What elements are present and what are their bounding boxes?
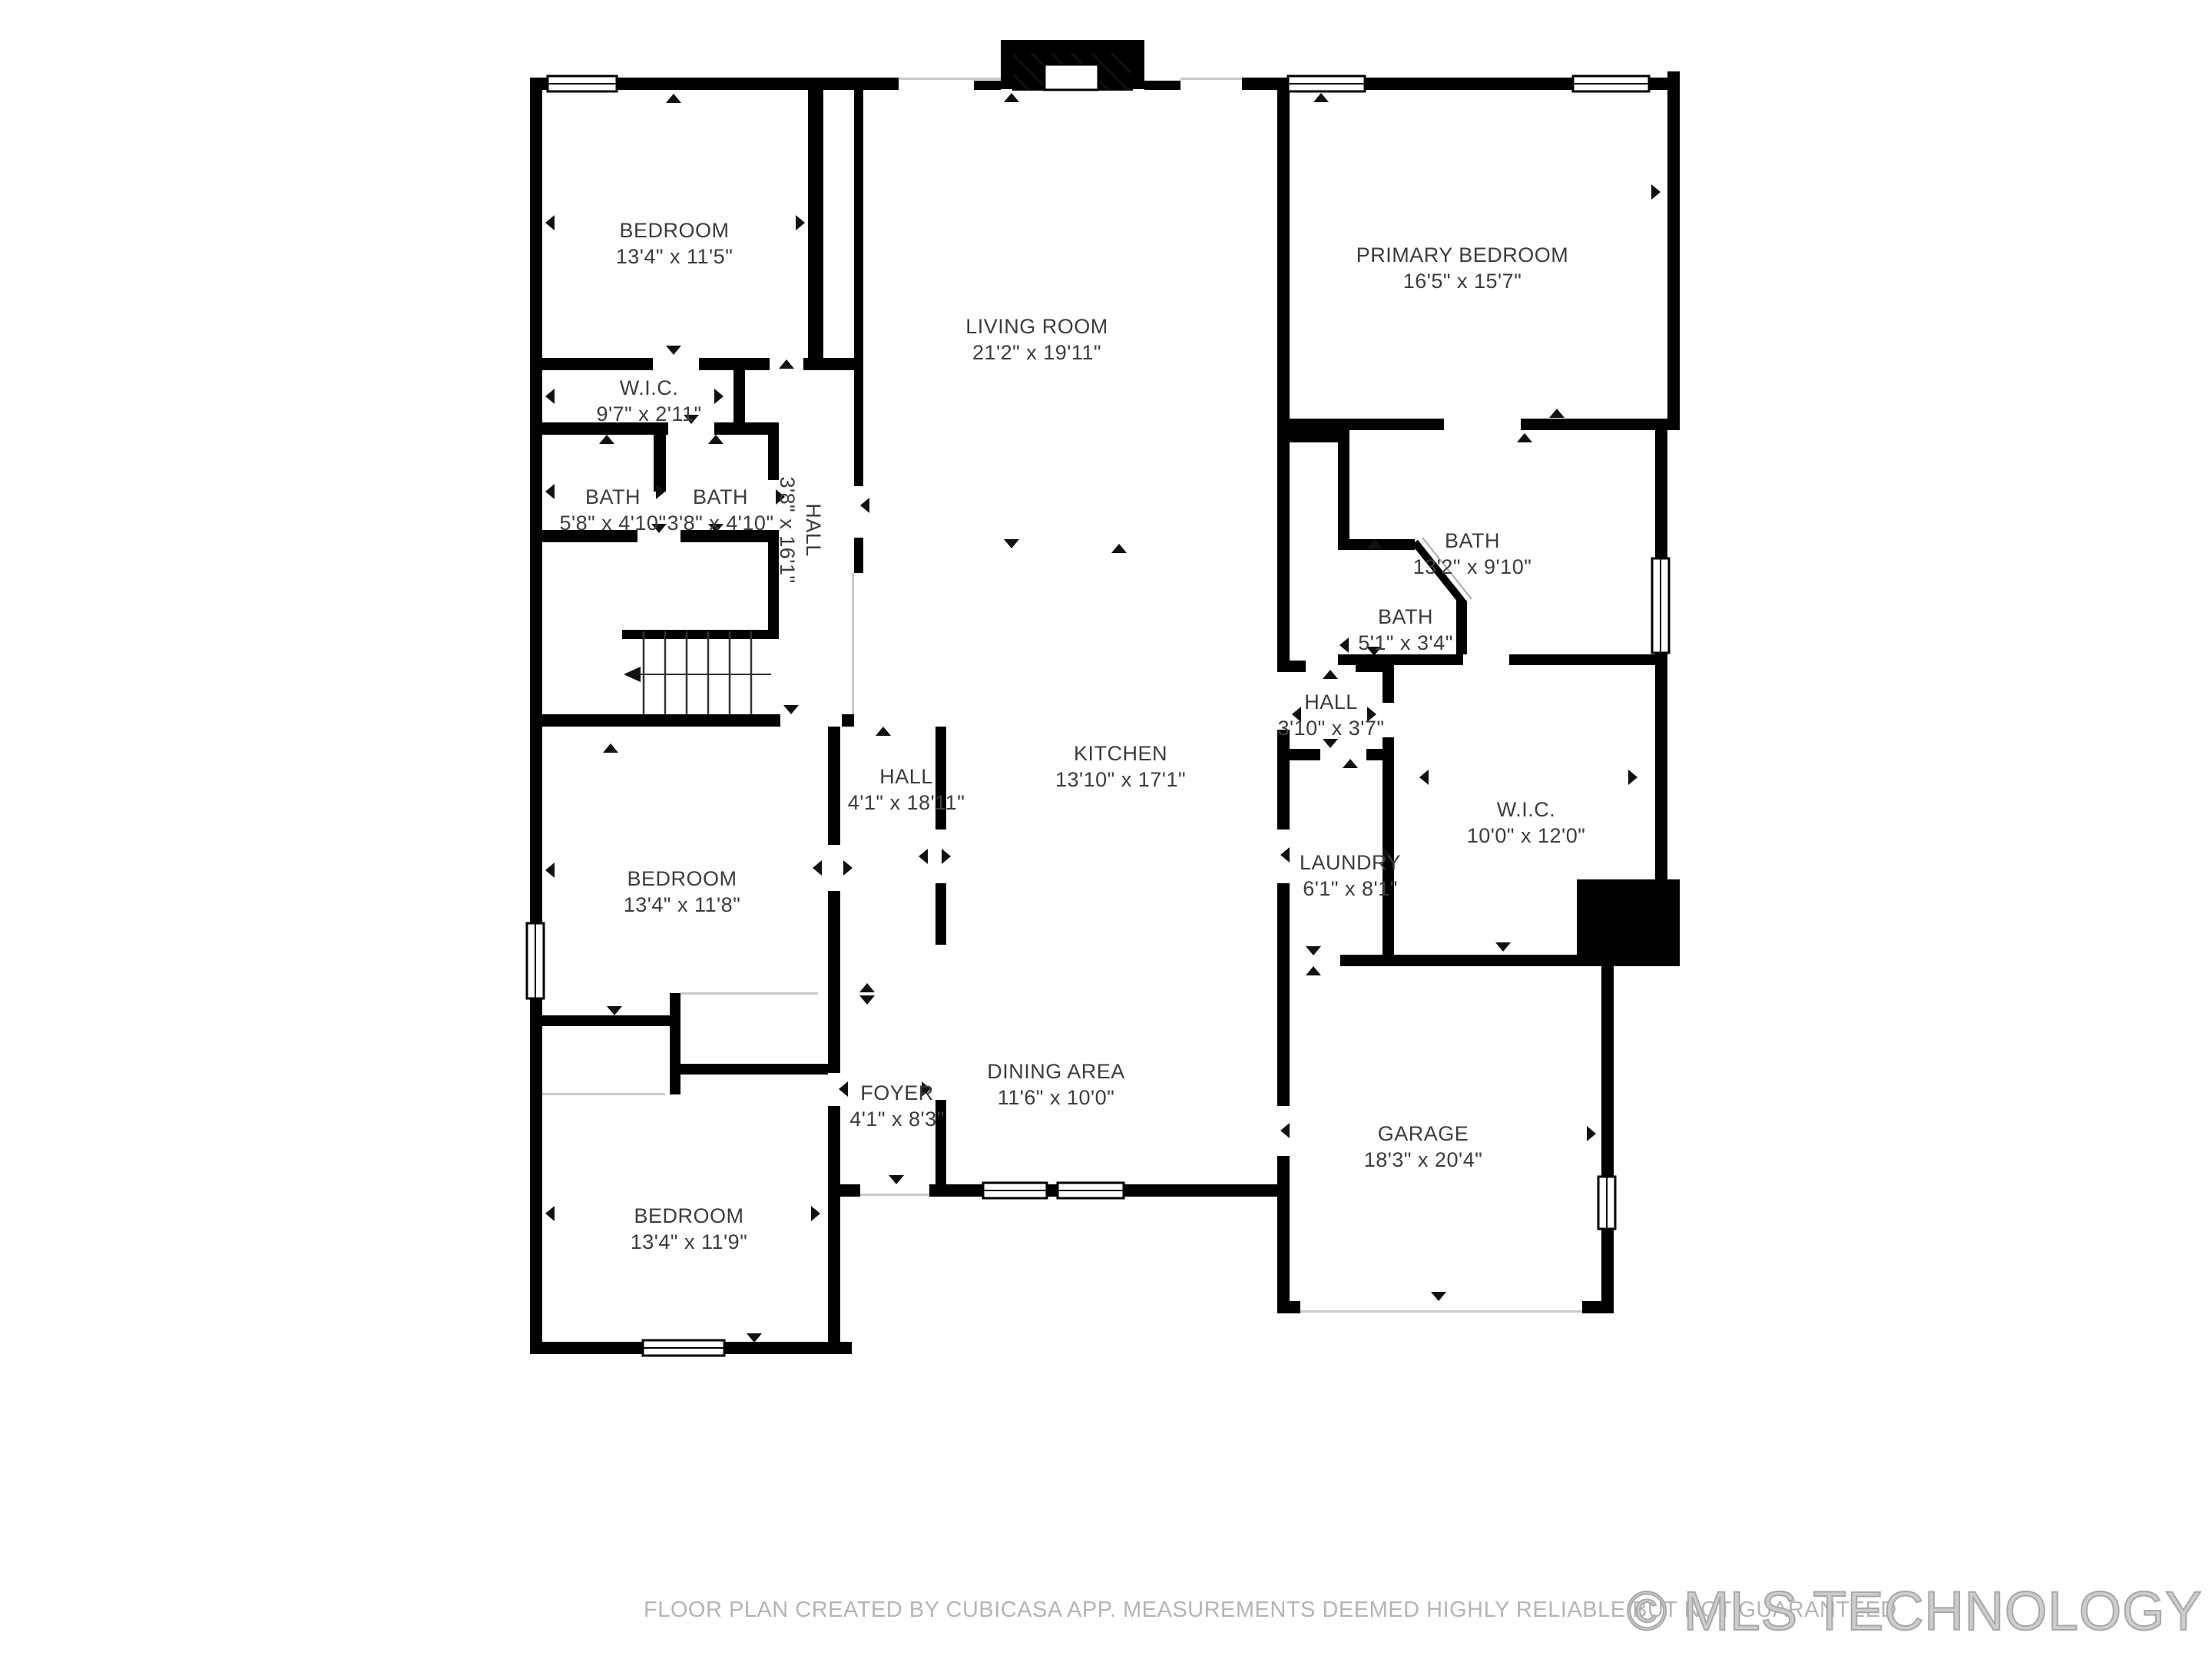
- door-marker: [666, 346, 681, 355]
- floor-plan-canvas: BEDROOM 13'4" x 11'5" W.I.C. 9'7" x 2'11…: [0, 0, 2212, 1659]
- door-marker: [599, 435, 614, 444]
- door-marker: [1367, 539, 1382, 548]
- door-marker: [1651, 184, 1661, 200]
- room-label-foyer: FOYER 4'1" x 8'3": [849, 1080, 945, 1132]
- door-marker: [1343, 759, 1358, 768]
- room-dims: 10'0" x 12'0": [1467, 823, 1586, 849]
- room-label-wic-1: W.I.C. 9'7" x 2'11": [596, 375, 701, 427]
- door-marker: [1587, 1126, 1596, 1141]
- door-marker: [545, 484, 555, 499]
- room-dims: 5'8" x 4'10": [559, 510, 666, 536]
- door-marker: [1549, 409, 1565, 418]
- door-marker: [545, 863, 555, 878]
- room-dims: 13'2" x 9'10": [1413, 554, 1532, 580]
- door-marker: [919, 849, 928, 864]
- door-marker: [1004, 539, 1019, 548]
- room-label-hall-small: HALL 3'10" x 3'7": [1277, 689, 1384, 741]
- window: [548, 76, 617, 91]
- door-marker: [1004, 93, 1019, 102]
- door-marker: [1339, 637, 1349, 653]
- door-marker: [1495, 942, 1511, 952]
- door-marker: [1517, 433, 1532, 442]
- room-dims: 13'4" x 11'8": [624, 892, 741, 918]
- door-marker: [859, 995, 875, 1005]
- room-label-bath-1: BATH 5'8" x 4'10": [559, 484, 666, 536]
- room-label-garage: GARAGE 18'3" x 20'4": [1364, 1121, 1483, 1173]
- door-marker: [545, 389, 555, 404]
- room-dims: 9'7" x 2'11": [596, 401, 701, 427]
- door-marker: [859, 983, 875, 992]
- room-label-bedroom-3: BEDROOM 13'4" x 11'9": [631, 1203, 748, 1255]
- window: [1652, 558, 1669, 653]
- room-label-dining-area: DINING AREA 11'6" x 10'0": [987, 1058, 1125, 1111]
- door-marker: [607, 1006, 622, 1015]
- door-marker: [942, 849, 951, 864]
- room-label-hall-upper: HALL 3'8" x 16'1": [774, 476, 826, 583]
- door-marker: [1628, 770, 1637, 785]
- window: [983, 1183, 1047, 1198]
- room-name: BATH: [693, 485, 748, 508]
- room-name: LIVING ROOM: [965, 315, 1108, 338]
- door-marker: [1323, 670, 1338, 679]
- room-name: FOYER: [860, 1081, 934, 1104]
- room-name: BEDROOM: [627, 867, 737, 890]
- door-marker: [843, 860, 853, 876]
- room-label-wic-2: W.I.C. 10'0" x 12'0": [1467, 796, 1586, 849]
- room-dims: 4'1" x 8'3": [849, 1106, 945, 1132]
- room-label-kitchen: KITCHEN 13'10" x 17'1": [1055, 740, 1186, 793]
- room-dims: 3'8" x 4'10": [667, 510, 773, 536]
- room-label-hall-lower: HALL 4'1" x 18'11": [848, 763, 965, 816]
- door-marker: [783, 705, 799, 714]
- window: [527, 923, 544, 998]
- room-dims: 4'1" x 18'11": [848, 790, 965, 816]
- door-marker: [1431, 1292, 1446, 1301]
- room-dims: 21'2" x 19'11": [965, 339, 1108, 366]
- door-marker: [860, 498, 869, 513]
- room-dims: 13'4" x 11'9": [631, 1229, 748, 1255]
- room-name: HALL: [879, 765, 933, 788]
- room-name: KITCHEN: [1074, 742, 1167, 765]
- door-marker: [1280, 1123, 1290, 1138]
- door-marker: [708, 435, 724, 444]
- room-name: HALL: [1304, 690, 1358, 714]
- room-dims: 13'10" x 17'1": [1055, 767, 1186, 793]
- staircase: [637, 631, 771, 714]
- room-label-laundry: LAUNDRY 6'1" x 8'1": [1300, 849, 1401, 902]
- room-name: DINING AREA: [987, 1060, 1125, 1083]
- door-marker: [603, 743, 618, 753]
- door-marker: [545, 215, 555, 230]
- door-marker: [813, 860, 822, 876]
- room-dims: 11'6" x 10'0": [987, 1084, 1125, 1111]
- floor-plan-drawing: [0, 0, 2212, 1659]
- door-marker: [1419, 770, 1429, 785]
- door-marker: [876, 727, 891, 736]
- door-marker: [747, 1333, 762, 1343]
- room-label-bedroom-1: BEDROOM 13'4" x 11'5": [616, 217, 733, 270]
- room-label-bedroom-2: BEDROOM 13'4" x 11'8": [624, 866, 741, 918]
- room-name: GARAGE: [1378, 1122, 1469, 1145]
- room-name: BEDROOM: [619, 219, 729, 242]
- window: [1288, 76, 1365, 91]
- door-marker: [1306, 946, 1321, 955]
- room-dims: 18'3" x 20'4": [1364, 1147, 1483, 1173]
- window: [1058, 1183, 1124, 1198]
- room-name: BATH: [1445, 529, 1500, 552]
- door-marker: [796, 215, 805, 230]
- room-dims: 5'1" x 3'4": [1358, 630, 1453, 656]
- room-name: BATH: [585, 485, 641, 508]
- room-label-bath-2: BATH 3'8" x 4'10": [667, 484, 773, 536]
- window: [643, 1340, 724, 1356]
- door-marker: [714, 389, 724, 404]
- room-label-bath-primary: BATH 13'2" x 9'10": [1413, 528, 1532, 580]
- door-marker: [811, 1206, 820, 1221]
- room-label-bath-small: BATH 5'1" x 3'4": [1358, 604, 1453, 656]
- room-name: LAUNDRY: [1300, 851, 1401, 874]
- room-name: W.I.C.: [620, 376, 679, 399]
- window: [1598, 1177, 1615, 1229]
- room-dims: 3'8" x 16'1": [774, 476, 800, 583]
- room-name: BATH: [1378, 605, 1433, 628]
- door-marker: [545, 1206, 555, 1221]
- room-dims: 6'1" x 8'1": [1300, 876, 1401, 902]
- door-marker: [1313, 93, 1329, 102]
- door-marker: [839, 1081, 848, 1097]
- door-marker: [1306, 966, 1321, 975]
- room-name: HALL: [802, 503, 825, 557]
- door-marker: [1111, 544, 1127, 553]
- mls-watermark: © MLS TECHNOLOGY INC 2026: [1627, 1581, 2212, 1643]
- door-marker: [666, 94, 681, 103]
- fireplace: [1001, 40, 1144, 90]
- room-label-primary-bedroom: PRIMARY BEDROOM 16'5" x 15'7": [1356, 242, 1569, 294]
- room-dims: 3'10" x 3'7": [1277, 715, 1384, 741]
- door-marker: [889, 1175, 904, 1184]
- room-name: W.I.C.: [1497, 798, 1556, 821]
- room-name: PRIMARY BEDROOM: [1356, 243, 1569, 267]
- room-name: BEDROOM: [634, 1204, 743, 1227]
- window: [1573, 76, 1649, 91]
- room-dims: 13'4" x 11'5": [616, 243, 733, 270]
- stairs-direction-arrow: [624, 667, 641, 682]
- door-marker: [1280, 847, 1290, 863]
- door-marker: [779, 359, 794, 369]
- room-label-living-room: LIVING ROOM 21'2" x 19'11": [965, 313, 1108, 366]
- room-dims: 16'5" x 15'7": [1356, 268, 1569, 294]
